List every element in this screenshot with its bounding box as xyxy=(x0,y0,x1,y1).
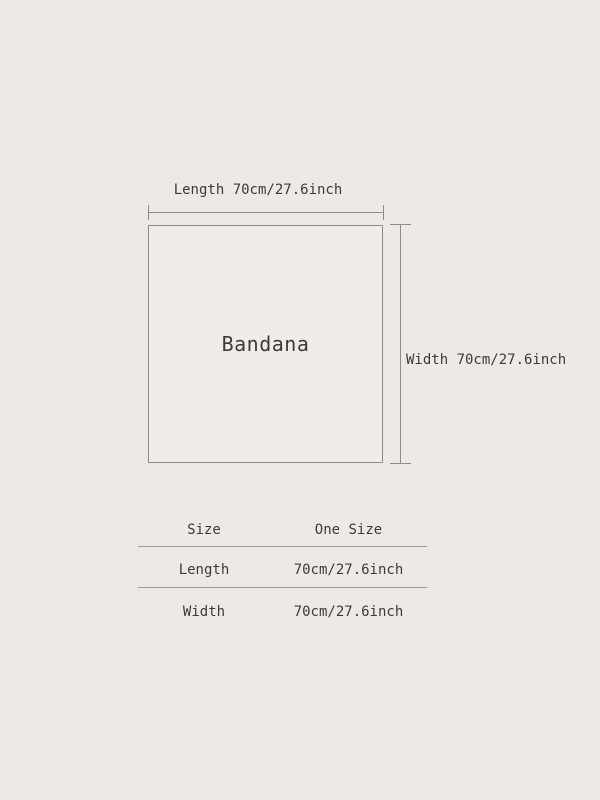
width-dimension-label: Width 70cm/27.6inch xyxy=(406,352,566,368)
length-dimension-line xyxy=(148,205,384,220)
product-name-label: Bandana xyxy=(222,332,310,356)
length-dimension-rule xyxy=(148,212,384,213)
size-chart-page: Length 70cm/27.6inch Bandana Width 70cm/… xyxy=(0,0,600,800)
size-table-header-size: Size xyxy=(138,522,270,538)
size-table: Size One Size Length 70cm/27.6inch Width… xyxy=(138,514,427,629)
size-table-header-one-size: One Size xyxy=(270,522,427,538)
length-dimension-label: Length 70cm/27.6inch xyxy=(140,182,376,198)
size-table-width-value: 70cm/27.6inch xyxy=(270,604,427,620)
product-outline: Bandana xyxy=(148,225,383,463)
length-dimension-tick-right xyxy=(383,205,384,220)
size-table-length-value: 70cm/27.6inch xyxy=(270,562,427,578)
width-dimension-line xyxy=(390,224,411,464)
size-table-length-label: Length xyxy=(138,562,270,578)
size-table-header-row: Size One Size xyxy=(138,514,427,547)
width-dimension-tick-bottom xyxy=(390,463,411,464)
size-table-width-label: Width xyxy=(138,604,270,620)
size-table-row-width: Width 70cm/27.6inch xyxy=(138,588,427,629)
width-dimension-rule xyxy=(400,224,401,464)
size-table-row-length: Length 70cm/27.6inch xyxy=(138,547,427,588)
